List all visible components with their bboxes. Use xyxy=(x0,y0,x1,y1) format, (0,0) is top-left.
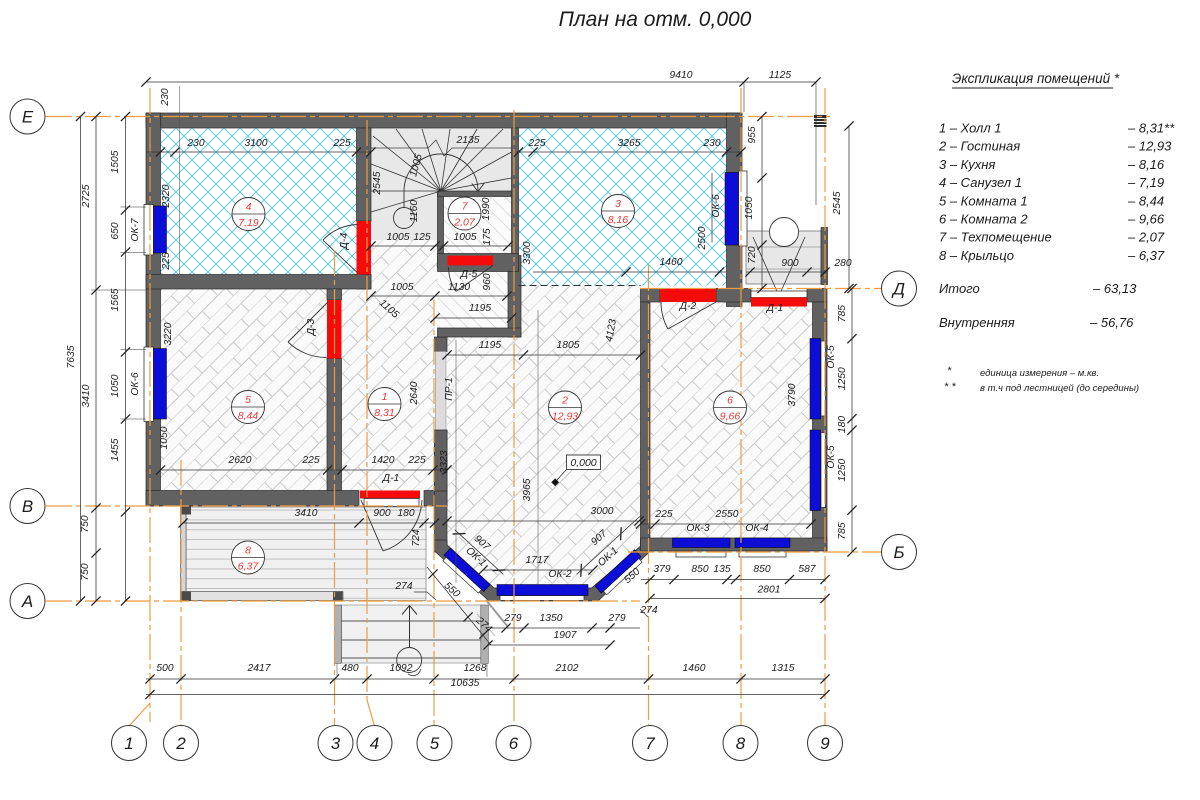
svg-text:2,07: 2,07 xyxy=(453,217,476,229)
svg-text:175: 175 xyxy=(482,228,493,245)
svg-text:1050: 1050 xyxy=(159,426,170,449)
svg-text:587: 587 xyxy=(798,564,816,575)
svg-text:500: 500 xyxy=(156,663,173,674)
svg-text:3300: 3300 xyxy=(522,241,533,264)
svg-text:Д: Д xyxy=(891,280,905,299)
svg-text:Д-2: Д-2 xyxy=(679,301,697,312)
svg-text:– 56,76: – 56,76 xyxy=(1089,315,1134,330)
svg-text:2550: 2550 xyxy=(715,509,739,520)
svg-text:2320: 2320 xyxy=(161,184,172,208)
svg-text:379: 379 xyxy=(653,564,670,575)
svg-text:6: 6 xyxy=(509,734,519,753)
svg-text:1717: 1717 xyxy=(526,555,550,566)
svg-text:1315: 1315 xyxy=(772,663,795,674)
svg-text:1455: 1455 xyxy=(110,438,121,461)
svg-text:230: 230 xyxy=(160,88,171,106)
svg-text:2725: 2725 xyxy=(81,184,92,208)
svg-text:А: А xyxy=(21,592,33,611)
svg-text:4: 4 xyxy=(370,734,379,753)
svg-text:ОК-7: ОК-7 xyxy=(130,217,141,242)
svg-text:279: 279 xyxy=(503,613,521,624)
svg-text:3: 3 xyxy=(331,734,341,753)
svg-text:ОК-4: ОК-4 xyxy=(745,523,769,534)
svg-text:724: 724 xyxy=(411,529,422,546)
svg-text:125: 125 xyxy=(413,232,430,243)
svg-text:955: 955 xyxy=(747,126,758,143)
svg-text:8,31: 8,31 xyxy=(374,407,394,419)
svg-text:1050: 1050 xyxy=(110,374,121,397)
svg-text:7635: 7635 xyxy=(66,345,77,368)
svg-text:ОК-5: ОК-5 xyxy=(826,445,837,469)
svg-text:7 – Техпомещение: 7 – Техпомещение xyxy=(939,230,1052,245)
svg-text:900: 900 xyxy=(781,258,798,269)
svg-text:1005: 1005 xyxy=(391,282,414,293)
svg-text:Е: Е xyxy=(22,108,34,127)
svg-text:9410: 9410 xyxy=(670,70,693,81)
svg-text:7,19: 7,19 xyxy=(238,217,259,229)
svg-text:1: 1 xyxy=(382,391,388,403)
svg-text:3: 3 xyxy=(615,198,621,210)
svg-text:6: 6 xyxy=(727,395,733,407)
svg-text:720: 720 xyxy=(747,246,758,263)
svg-text:1565: 1565 xyxy=(110,288,121,311)
svg-text:1460: 1460 xyxy=(683,663,706,674)
svg-text:– 9,66: – 9,66 xyxy=(1127,212,1165,227)
svg-text:850: 850 xyxy=(691,564,708,575)
svg-text:5: 5 xyxy=(245,394,251,406)
svg-text:1 – Холл 1: 1 – Холл 1 xyxy=(939,121,1002,136)
svg-text:*: * xyxy=(947,365,952,377)
svg-text:1505: 1505 xyxy=(110,150,121,173)
svg-text:В: В xyxy=(22,497,33,516)
svg-text:225: 225 xyxy=(527,138,545,149)
svg-text:2102: 2102 xyxy=(555,663,579,674)
svg-text:900: 900 xyxy=(373,508,390,519)
svg-text:225: 225 xyxy=(654,509,672,520)
svg-text:3323: 3323 xyxy=(439,450,450,473)
svg-text:8 – Крыльцо: 8 – Крыльцо xyxy=(939,248,1014,263)
svg-text:180: 180 xyxy=(397,508,414,519)
svg-text:1160: 1160 xyxy=(409,200,420,222)
svg-text:– 12,93: – 12,93 xyxy=(1127,139,1172,154)
svg-text:1130: 1130 xyxy=(448,282,470,293)
svg-text:1: 1 xyxy=(124,734,133,753)
svg-text:ОК-6: ОК-6 xyxy=(130,372,141,396)
svg-text:785: 785 xyxy=(837,522,848,539)
svg-text:180: 180 xyxy=(837,416,848,433)
svg-text:– 63,13: – 63,13 xyxy=(1092,281,1137,296)
svg-text:– 2,07: – 2,07 xyxy=(1127,230,1165,245)
svg-text:1250: 1250 xyxy=(837,367,848,390)
svg-text:План на отм. 0,000: План на отм. 0,000 xyxy=(559,8,752,31)
svg-text:750: 750 xyxy=(80,563,91,580)
svg-text:1805: 1805 xyxy=(557,340,580,351)
svg-text:ОК-2: ОК-2 xyxy=(548,569,572,580)
svg-text:1050: 1050 xyxy=(744,196,755,219)
svg-text:225: 225 xyxy=(332,138,350,149)
svg-text:480: 480 xyxy=(341,663,358,674)
svg-text:в т.ч под лестницей (до середи: в т.ч под лестницей (до середины) xyxy=(980,383,1139,394)
svg-text:3410: 3410 xyxy=(81,384,92,407)
svg-text:ОК-6: ОК-6 xyxy=(711,194,722,218)
svg-text:Б: Б xyxy=(893,543,904,562)
svg-text:274: 274 xyxy=(394,581,412,592)
svg-text:5: 5 xyxy=(430,734,440,753)
svg-text:ОК-5: ОК-5 xyxy=(826,345,837,369)
svg-text:1268: 1268 xyxy=(464,663,487,674)
svg-text:4: 4 xyxy=(246,201,252,213)
svg-text:274: 274 xyxy=(639,605,657,616)
svg-text:135: 135 xyxy=(713,564,730,575)
svg-text:8,16: 8,16 xyxy=(608,214,629,226)
svg-text:* *: * * xyxy=(944,381,956,393)
svg-text:2135: 2135 xyxy=(456,135,480,146)
svg-text:3100: 3100 xyxy=(245,138,268,149)
svg-text:1005: 1005 xyxy=(387,232,410,243)
svg-text:3265: 3265 xyxy=(618,138,641,149)
svg-text:2417: 2417 xyxy=(247,663,272,674)
svg-text:– 8,44: – 8,44 xyxy=(1127,193,1164,208)
svg-text:6,37: 6,37 xyxy=(238,561,260,573)
svg-text:1195: 1195 xyxy=(479,340,501,351)
svg-text:3000: 3000 xyxy=(591,506,614,517)
svg-text:– 8,16: – 8,16 xyxy=(1127,157,1165,172)
svg-text:3410: 3410 xyxy=(295,508,318,519)
svg-text:2500: 2500 xyxy=(697,226,708,250)
svg-text:1907: 1907 xyxy=(554,630,578,641)
svg-text:8,44: 8,44 xyxy=(238,410,259,422)
svg-text:– 7,19: – 7,19 xyxy=(1127,175,1164,190)
svg-text:960: 960 xyxy=(482,273,493,290)
svg-text:Д-4: Д-4 xyxy=(339,233,350,251)
svg-text:1005: 1005 xyxy=(454,232,477,243)
svg-text:2620: 2620 xyxy=(228,455,252,466)
svg-text:2 – Гостиная: 2 – Гостиная xyxy=(938,139,1020,154)
svg-text:4 – Санузел 1: 4 – Санузел 1 xyxy=(939,175,1022,190)
svg-text:– 8,31**: – 8,31** xyxy=(1127,121,1175,136)
svg-text:1092: 1092 xyxy=(390,663,413,674)
svg-text:6 – Комната 2: 6 – Комната 2 xyxy=(939,212,1028,227)
svg-text:1420: 1420 xyxy=(372,455,395,466)
svg-text:1250: 1250 xyxy=(837,458,848,481)
svg-text:1350: 1350 xyxy=(540,613,563,624)
svg-text:225: 225 xyxy=(407,455,425,466)
svg-text:9,66: 9,66 xyxy=(720,411,741,423)
svg-text:8: 8 xyxy=(245,545,251,557)
svg-text:1460: 1460 xyxy=(660,257,683,268)
svg-text:10635: 10635 xyxy=(451,678,480,689)
svg-text:Д-1: Д-1 xyxy=(382,473,399,484)
svg-text:ОК-3: ОК-3 xyxy=(686,523,710,534)
svg-text:5 – Комната 1: 5 – Комната 1 xyxy=(939,193,1028,208)
svg-text:280: 280 xyxy=(833,258,851,269)
svg-text:1990: 1990 xyxy=(481,197,492,220)
svg-text:230: 230 xyxy=(186,138,204,149)
svg-text:единица измерения – м.кв.: единица измерения – м.кв. xyxy=(980,368,1099,379)
svg-text:2801: 2801 xyxy=(757,585,781,596)
svg-text:850: 850 xyxy=(753,564,770,575)
svg-text:225: 225 xyxy=(161,252,172,270)
svg-text:– 6,37: – 6,37 xyxy=(1127,248,1165,263)
svg-text:230: 230 xyxy=(702,138,720,149)
svg-text:0,000: 0,000 xyxy=(570,457,596,469)
svg-text:225: 225 xyxy=(301,455,319,466)
svg-text:8: 8 xyxy=(736,734,746,753)
svg-text:750: 750 xyxy=(80,515,91,532)
svg-text:Экспликация помещений *: Экспликация помещений * xyxy=(952,71,1120,86)
svg-text:Итого: Итого xyxy=(939,281,980,296)
svg-text:ПР-1: ПР-1 xyxy=(444,377,455,401)
svg-text:3790: 3790 xyxy=(787,383,798,406)
svg-text:2545: 2545 xyxy=(372,171,383,195)
svg-text:9: 9 xyxy=(820,734,830,753)
svg-text:2640: 2640 xyxy=(409,381,420,405)
svg-text:3965: 3965 xyxy=(522,478,533,501)
svg-text:650: 650 xyxy=(110,222,121,239)
svg-text:Д-1: Д-1 xyxy=(766,303,783,314)
svg-text:785: 785 xyxy=(837,305,848,322)
svg-text:279: 279 xyxy=(607,613,625,624)
svg-text:3 – Кухня: 3 – Кухня xyxy=(939,157,995,172)
svg-text:Внутренняя: Внутренняя xyxy=(939,315,1015,330)
svg-text:2545: 2545 xyxy=(832,191,843,215)
svg-text:1195: 1195 xyxy=(469,303,491,314)
svg-text:Д-5: Д-5 xyxy=(460,269,478,280)
svg-text:7: 7 xyxy=(645,734,655,753)
svg-text:2: 2 xyxy=(561,395,568,407)
svg-text:Д-3: Д-3 xyxy=(306,319,317,337)
svg-text:3220: 3220 xyxy=(163,322,174,345)
svg-text:2: 2 xyxy=(175,734,186,753)
svg-text:1125: 1125 xyxy=(769,70,791,81)
svg-text:12,93: 12,93 xyxy=(552,411,578,423)
